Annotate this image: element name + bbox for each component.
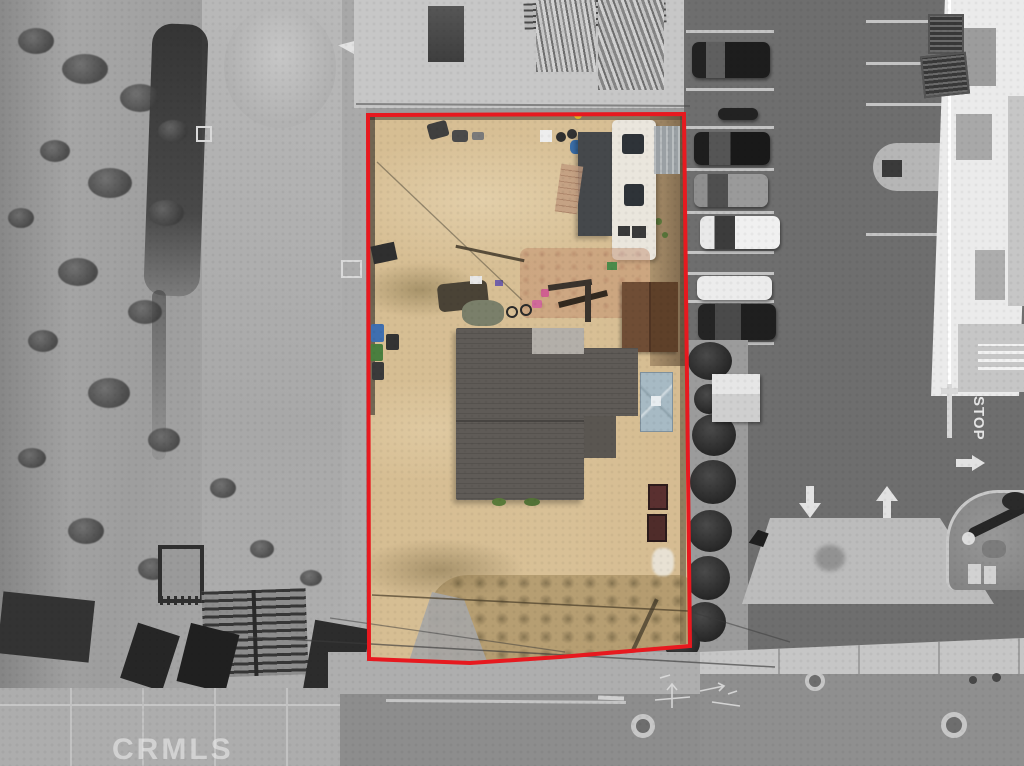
trailer-box: [632, 226, 646, 238]
bush: [88, 168, 132, 198]
lane-arrow-down-head-icon: [799, 503, 821, 518]
trash-bin-green: [370, 344, 383, 361]
watermark: CRMLS: [112, 733, 234, 766]
green-crate: [607, 262, 617, 270]
bush: [8, 208, 34, 228]
ravine-shadow: [143, 23, 208, 297]
dirt-mound: [224, 6, 336, 128]
lane-dash: [598, 696, 624, 701]
rack-comb: [160, 596, 204, 605]
tire: [556, 132, 566, 142]
shrub: [686, 556, 730, 600]
house-roof-light-section: [532, 328, 584, 354]
bush: [18, 448, 46, 468]
palm-frond-shadow: [1002, 492, 1024, 510]
bush: [250, 540, 274, 558]
bush: [40, 140, 70, 162]
lane-arrow-up-icon: [883, 501, 891, 518]
parking-stripe: [686, 88, 774, 91]
parking-stripe: [866, 103, 944, 106]
shrub: [688, 510, 732, 552]
vehicle-gray-sedan: [694, 174, 768, 207]
grass-tuft: [524, 498, 540, 506]
utility-box: [882, 160, 902, 177]
parking-stripe: [686, 272, 774, 275]
vehicle-dark-pickup: [692, 42, 770, 78]
white-debris: [652, 548, 674, 576]
lane-arrow-right-icon: [956, 459, 972, 467]
house-ridge-line: [456, 420, 584, 422]
bicycle-wheel: [506, 306, 518, 318]
stop-pavement-text: STOP: [970, 396, 986, 436]
carport-awning: [578, 132, 612, 236]
bush: [88, 378, 130, 408]
trailer-slideout: [624, 184, 644, 206]
white-marker-square: [196, 126, 212, 142]
parking-stripe: [686, 30, 774, 33]
trailer-slideout: [622, 134, 644, 154]
bush: [148, 428, 180, 452]
vehicle-white-van: [697, 276, 772, 300]
lumber-stack: [536, 0, 596, 72]
vehicle-dark-sedan: [694, 132, 770, 165]
dark-panel: [0, 591, 95, 662]
house-roof-wing-lower: [584, 416, 616, 458]
bush: [128, 300, 162, 324]
parking-stripe: [686, 126, 774, 129]
weed: [662, 232, 668, 238]
white-item: [470, 276, 482, 284]
pole-shadow: [455, 245, 524, 262]
parking-stripe: [686, 211, 774, 214]
building-recess: [975, 250, 1005, 300]
dark-board-panel: [428, 6, 464, 62]
lane-arrow-up-head-icon: [876, 486, 898, 501]
trash-bin-blue: [371, 324, 384, 342]
storage-rack-frame: [158, 545, 204, 603]
pink-item: [532, 300, 542, 308]
bush: [158, 120, 188, 142]
patio-chair: [452, 130, 468, 142]
shrub: [690, 460, 736, 504]
manhole-cover: [805, 671, 825, 691]
dark-board: [585, 284, 591, 322]
parking-stripe: [686, 168, 774, 171]
bush: [28, 330, 58, 352]
utility-pad: [984, 566, 996, 584]
tire: [567, 129, 577, 139]
house-roof-wing: [584, 348, 638, 416]
vehicle-motorcycle: [718, 108, 758, 120]
street-asphalt-south-east: [700, 674, 1024, 766]
parking-stripe: [686, 300, 774, 303]
tarp: [462, 300, 504, 326]
pavement-dot: [992, 673, 1001, 682]
manhole-cover: [941, 712, 967, 738]
bush: [120, 84, 160, 112]
white-shed: [712, 374, 760, 422]
weed: [655, 218, 662, 225]
parking-stripe: [866, 233, 944, 236]
bush: [18, 28, 54, 54]
bush: [58, 258, 98, 286]
building-recess: [956, 114, 992, 160]
yellow-item: [574, 111, 582, 119]
building-shadow-gap: [1008, 96, 1024, 306]
shade-panel: [370, 242, 397, 265]
purple-item: [495, 280, 503, 286]
north-fence-debris: [368, 110, 686, 120]
grass-tuft: [492, 498, 506, 506]
lane-arrow-right-head-icon: [972, 455, 985, 471]
bush: [148, 200, 184, 226]
aerial-photo: STOP: [0, 0, 1024, 766]
parking-stripe: [686, 251, 774, 254]
white-railing: [978, 344, 1024, 370]
planter-debris: [982, 540, 1006, 558]
trash-bin-dark: [386, 334, 399, 350]
trailer-box: [618, 226, 630, 236]
bush: [68, 518, 104, 544]
white-marker-square: [341, 260, 362, 278]
lumber-stack: [598, 0, 664, 90]
bush: [210, 478, 236, 498]
bush: [62, 54, 108, 84]
apron-stain: [815, 545, 845, 571]
maroon-trailer: [647, 514, 667, 542]
patio-chair: [426, 120, 449, 141]
rooftop-ac-unit: [928, 14, 964, 54]
bush: [300, 570, 322, 586]
white-box: [540, 130, 552, 142]
palm-trunk-top: [962, 532, 975, 545]
lane-arrow-down-icon: [806, 486, 814, 503]
vehicle-white-sedan: [700, 216, 780, 249]
rooftop-ac-unit: [920, 52, 970, 99]
utility-pad: [968, 564, 981, 584]
stop-bar-cross: [941, 388, 958, 394]
bicycle-wheel: [520, 304, 532, 316]
vehicle-dark-suv: [698, 304, 776, 340]
manhole-cover: [631, 714, 655, 738]
trash-bin-black: [372, 362, 384, 380]
canopy-vent: [651, 396, 661, 406]
maroon-trailer: [648, 484, 668, 510]
brown-shed: [622, 282, 678, 352]
pavement-dot: [969, 676, 977, 684]
small-table: [472, 132, 484, 140]
metal-leanto: [654, 126, 680, 174]
